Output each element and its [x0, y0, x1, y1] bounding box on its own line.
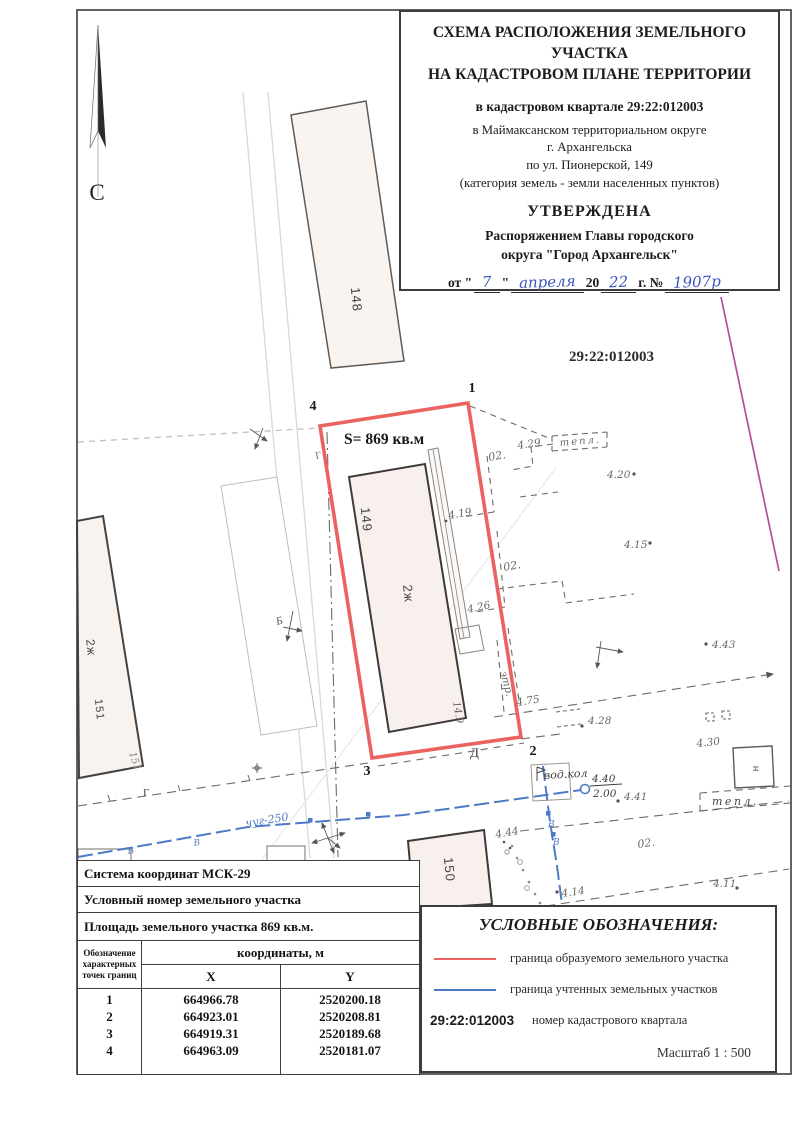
gas-label-2: Г — [315, 450, 323, 462]
x-header: X — [142, 965, 281, 989]
vodkol-label: вод.кол — [543, 767, 587, 782]
elev-4-44: 4.44 — [493, 825, 519, 841]
coord-system-row: Система координат МСК-29 — [78, 861, 420, 887]
building-thin — [221, 477, 317, 735]
title-line-1: СХЕМА РАСПОЛОЖЕНИЯ ЗЕМЕЛЬНОГО УЧАСТКА — [401, 23, 778, 65]
plot-area-label: S= 869 кв.м — [344, 431, 425, 448]
well-depth-bottom: 2.00 — [592, 788, 617, 800]
address-line-4: (категория земель - земли населенных пун… — [401, 175, 778, 193]
building-n-label: н — [750, 766, 761, 773]
gas-label-1: Г — [143, 787, 149, 799]
x-column: 664966.78 664923.01 664919.31 664963.09 — [142, 989, 281, 1075]
coordinates-table: Система координат МСК-29 Условный номер … — [77, 860, 420, 1075]
quarter-line: в кадастровом квартале 29:22:012003 — [401, 99, 778, 115]
document-title: СХЕМА РАСПОЛОЖЕНИЯ ЗЕМЕЛЬНОГО УЧАСТКА НА… — [401, 23, 778, 86]
oz-label-1: 02. — [487, 448, 506, 464]
elev-4-43: 4.43 — [711, 639, 736, 651]
pipe-material-label: чуг-250 — [244, 810, 289, 830]
oz-label-2: 02. — [502, 558, 521, 574]
approved-label: УТВЕРЖДЕНА — [401, 203, 778, 221]
teplo-top-label: тепл. — [559, 434, 601, 449]
y-header: Y — [281, 965, 420, 989]
dotted-marks — [505, 845, 542, 905]
elev-4-29: 4.29 — [516, 437, 542, 452]
coords-header: координаты, м — [142, 941, 420, 965]
oz-label-3: 02. — [637, 836, 656, 851]
address-line-3: по ул. Пионерской, 149 — [401, 157, 778, 175]
north-arrow: С — [89, 25, 106, 205]
elev-4-75: 4.75 — [515, 693, 541, 709]
point-label-3: 3 — [364, 764, 371, 779]
building-151-label: 151 — [92, 698, 106, 720]
point-label-2: 2 — [530, 744, 537, 759]
cadastral-scheme-page: С 29:22:012003 S= 869 кв.м 1 4 3 2 Д Г Г… — [0, 0, 800, 1130]
elev-4-20: 4.20 — [606, 469, 631, 481]
conditional-number-row: Условный номер земельного участка — [78, 887, 420, 913]
building-151-floors: 2ж — [83, 639, 99, 657]
elev-4-41: 4.41 — [623, 791, 647, 803]
order-block: Распоряжением Главы городского округа "Г… — [401, 227, 778, 263]
map-cadastral-number: 29:22:012003 — [569, 349, 654, 365]
quarter-boundary-line — [721, 297, 779, 571]
date-year-prefix: 20 — [586, 275, 600, 290]
date-month-handwritten: апреля — [519, 272, 576, 292]
address-line-2: г. Архангельска — [401, 139, 778, 157]
building-149-floors: 2ж — [400, 584, 417, 603]
date-day-handwritten: 7 — [482, 273, 492, 291]
elev-4-11: 4.11 — [712, 878, 736, 890]
legend-item-quarter-number: 29:22:012003 номер кадастрового квартала — [422, 1013, 775, 1028]
building-150-label: 150 — [441, 856, 459, 882]
elev-4-30: 4.30 — [695, 736, 721, 751]
building-148 — [291, 101, 404, 368]
fence-d-label: Д — [470, 745, 479, 760]
date-suffix: г. № — [638, 275, 663, 290]
legend-item-registered-boundary: граница учтенных земельных участков — [422, 982, 775, 997]
water-mark-v1: В — [126, 846, 135, 857]
building-149-label: 149 — [358, 506, 376, 532]
building-small-mid — [267, 846, 305, 861]
address-line-1: в Маймаксанском территориальном округе — [401, 122, 778, 140]
water-well-symbol — [581, 785, 590, 794]
legend-quarter-code: 29:22:012003 — [430, 1013, 528, 1028]
title-line-2: НА КАДАСТРОВОМ ПЛАНЕ ТЕРРИТОРИИ — [401, 65, 778, 86]
blue-line-sample — [434, 989, 496, 991]
building-148-label: 148 — [348, 286, 366, 312]
points-header: Обозначение характерных точек границ — [78, 941, 142, 989]
elev-4-19: 4.19 — [446, 506, 472, 522]
elev-4-15: 4.15 — [623, 539, 648, 551]
area-row: Площадь земельного участка 869 кв.м. — [78, 913, 420, 941]
red-line-sample — [434, 958, 496, 960]
legend-item-plot-boundary: граница образуемого земельного участка — [422, 951, 775, 966]
water-mark-v3: В — [547, 820, 555, 830]
order-line-1: Распоряжением Главы городского — [401, 227, 778, 245]
date-year-handwritten: 22 — [609, 273, 629, 292]
teplo-bottom-label: тепл. — [712, 795, 759, 808]
scale-label: Масштаб 1 : 500 — [657, 1045, 751, 1061]
approval-date-line: от "7"апреля2022г. №1907р — [401, 273, 778, 293]
point-label-1: 1 — [469, 381, 476, 396]
north-label: С — [89, 180, 104, 205]
point-number-column: 1 2 3 4 — [78, 989, 142, 1075]
legend-box: УСЛОВНЫЕ ОБОЗНАЧЕНИЯ: граница образуемог… — [420, 905, 777, 1073]
order-number-handwritten: 1907р — [673, 272, 721, 292]
date-infix: " — [502, 275, 510, 290]
well-depth-top: 4.40 — [591, 773, 616, 785]
order-line-2: округа "Город Архангельск" — [401, 246, 778, 264]
address-block: в Маймаксанском территориальном округе г… — [401, 122, 778, 193]
elev-4-26: 4.26 — [465, 599, 492, 616]
elev-4-28: 4.28 — [587, 715, 612, 727]
y-column: 2520200.18 2520208.81 2520189.68 2520181… — [281, 989, 420, 1075]
date-prefix: от " — [448, 275, 472, 290]
elev-4-14: 4.14 — [560, 885, 586, 900]
point-label-4: 4 — [310, 399, 317, 414]
water-mark-v4: В — [552, 838, 560, 848]
water-mark-v2: В — [192, 838, 201, 849]
title-block: СХЕМА РАСПОЛОЖЕНИЯ ЗЕМЕЛЬНОГО УЧАСТКА НА… — [399, 10, 780, 291]
legend-title: УСЛОВНЫЕ ОБОЗНАЧЕНИЯ: — [422, 915, 775, 935]
